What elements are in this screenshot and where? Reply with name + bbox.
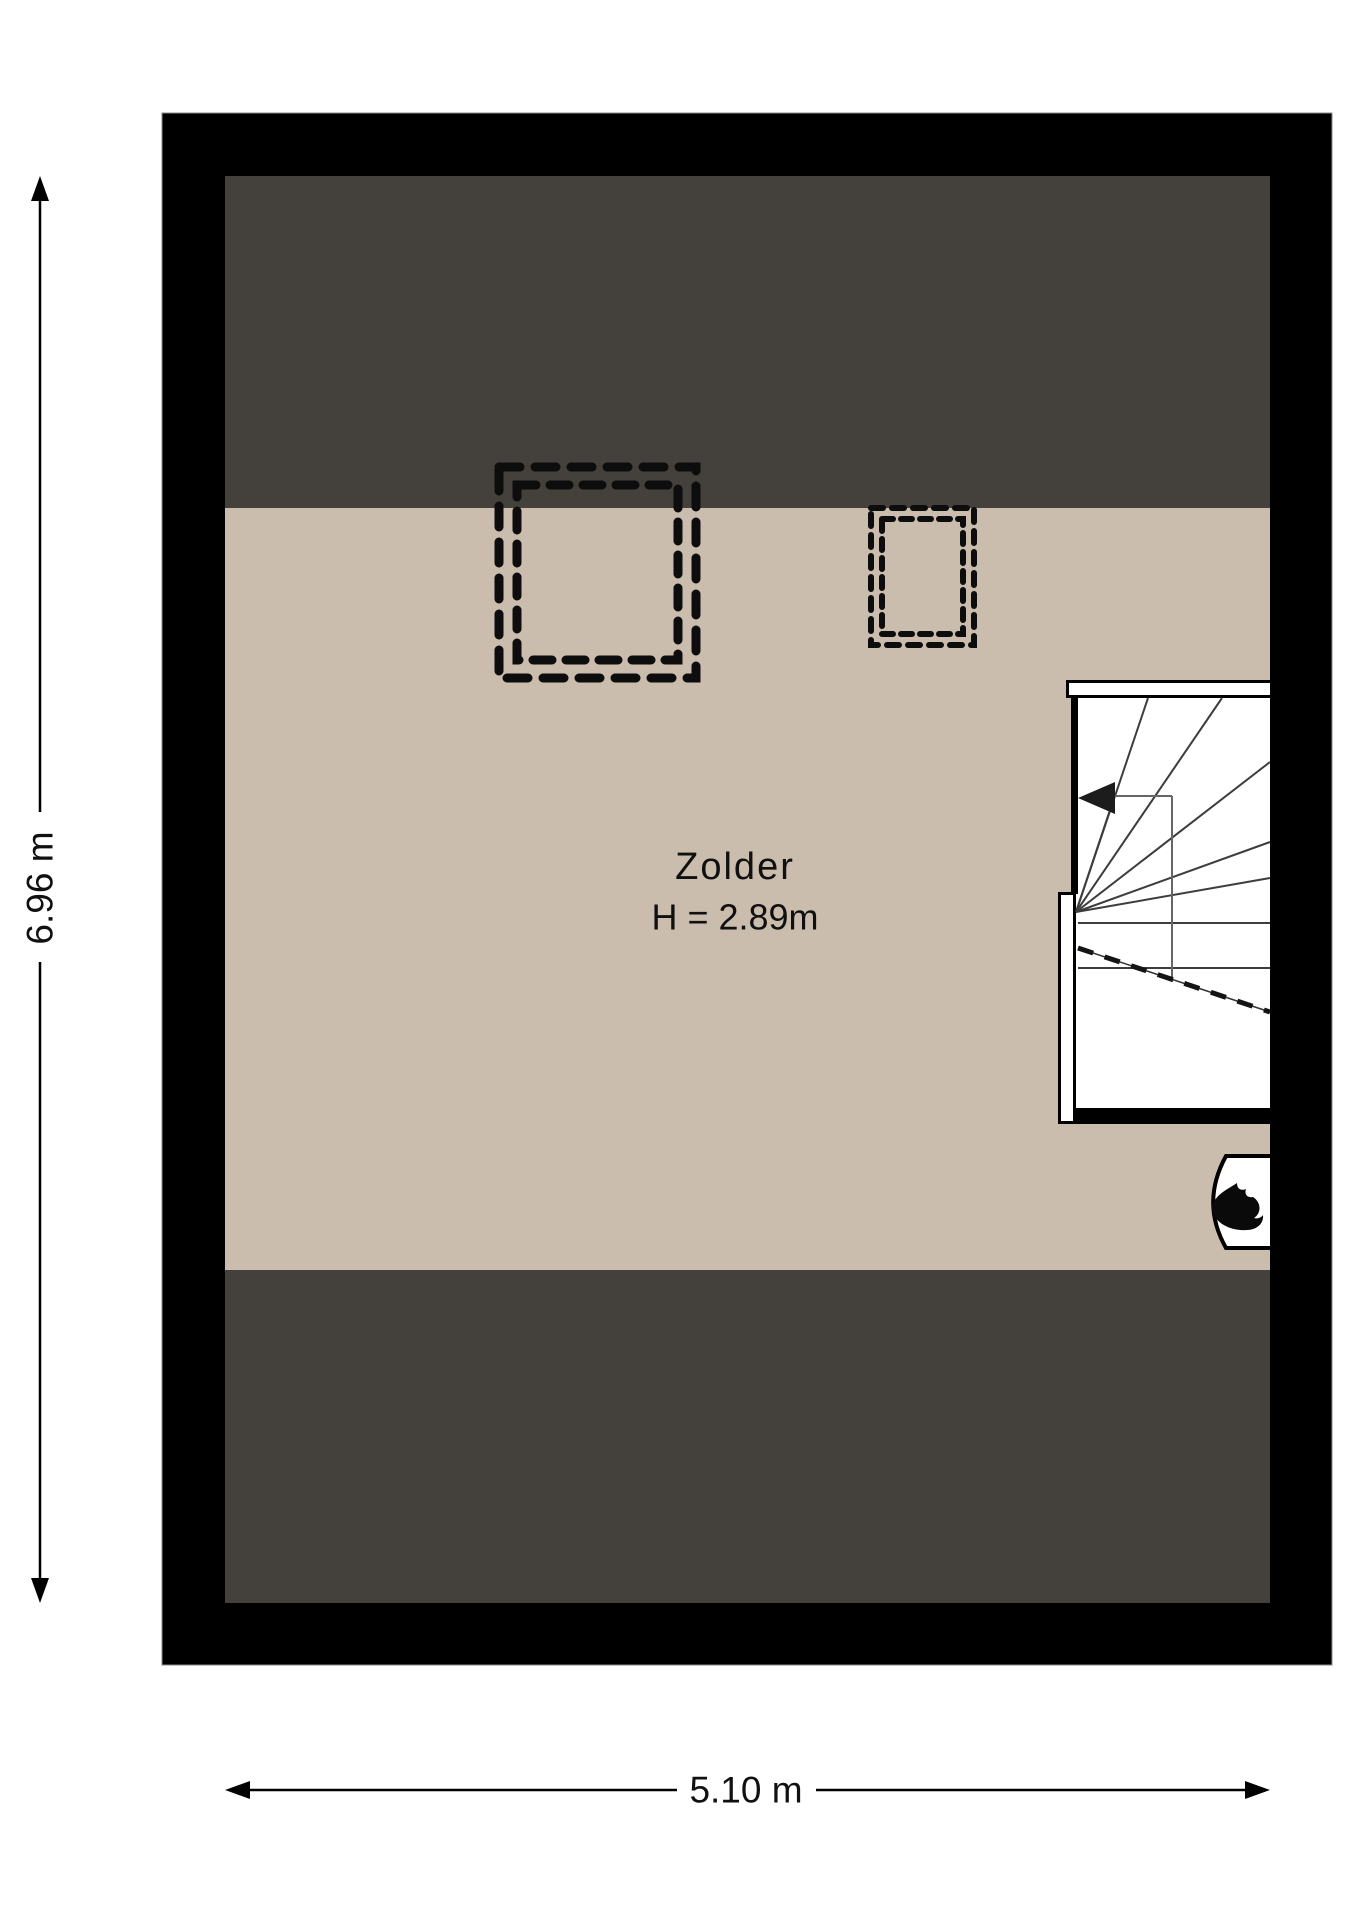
stairwell-bottom-wall xyxy=(1074,1108,1270,1124)
horizontal-dimension-label: 5.10 m xyxy=(689,1770,802,1811)
floorplan-page: 6.96 m 5.10 m Zolder H = 2.89m xyxy=(0,0,1358,1920)
boiler xyxy=(1212,1156,1270,1248)
floorplan-drawing: 6.96 m 5.10 m Zolder H = 2.89m xyxy=(0,0,1358,1920)
staircase xyxy=(1060,682,1272,1125)
stairwell-wall-protrusion xyxy=(1060,894,1075,1123)
vertical-dimension-label: 6.96 m xyxy=(20,831,61,944)
roof-slope-top xyxy=(225,176,1270,508)
stair-top-landing xyxy=(1068,682,1272,697)
stairwell-left-wall xyxy=(1071,697,1078,894)
roof-slope-bottom xyxy=(225,1270,1270,1603)
room-height-label: H = 2.89m xyxy=(651,897,818,938)
room-label: Zolder xyxy=(675,846,795,888)
